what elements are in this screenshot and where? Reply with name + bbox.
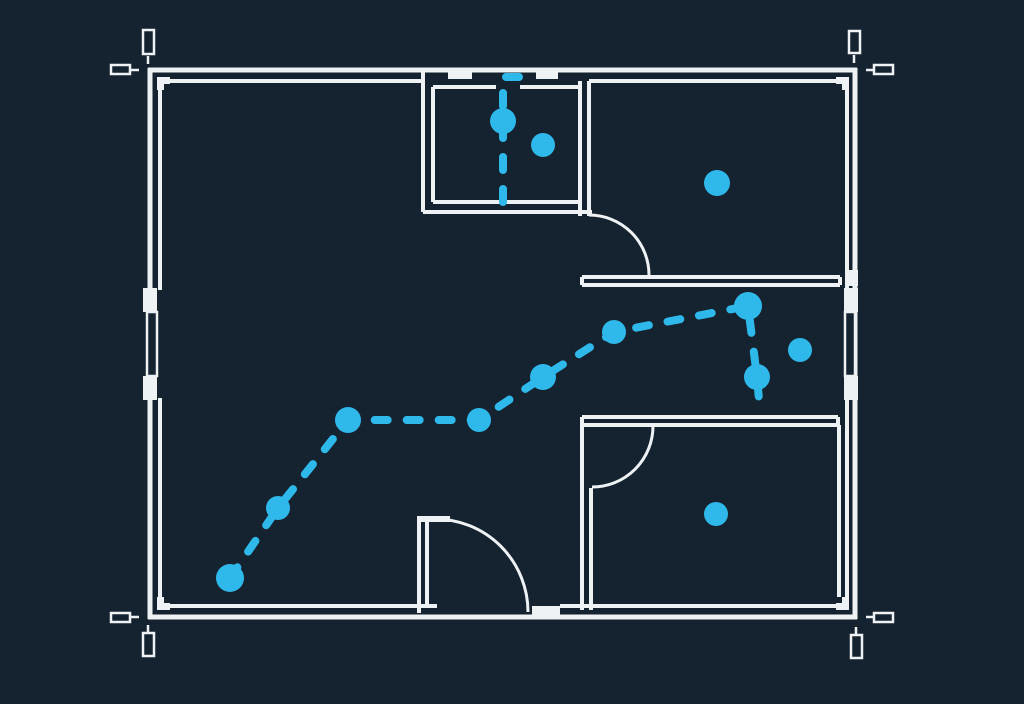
- route-node: [216, 564, 244, 592]
- wall-joint-notch: [836, 597, 842, 603]
- wall-joint-notch: [164, 84, 170, 90]
- marker-dot: [788, 338, 812, 362]
- route-node: [744, 364, 770, 390]
- wall-block: [848, 270, 858, 286]
- wall-joint-notch: [164, 597, 170, 603]
- route-node: [530, 364, 556, 390]
- wall-block: [532, 606, 560, 619]
- marker-dot: [704, 170, 730, 196]
- route-node: [467, 408, 491, 432]
- floor-plan-drawing: [0, 0, 1024, 704]
- wall-block: [536, 71, 558, 79]
- wall-block: [448, 71, 472, 79]
- wall-block: [143, 288, 157, 312]
- wall-block: [844, 376, 858, 400]
- window-pane: [147, 312, 157, 376]
- route-node: [734, 292, 762, 320]
- wall-joint-notch: [836, 84, 842, 90]
- wall-block: [844, 288, 858, 312]
- route-node: [335, 407, 361, 433]
- route-node: [266, 496, 290, 520]
- window-pane: [845, 312, 855, 376]
- marker-dot: [531, 133, 555, 157]
- route-node: [602, 320, 626, 344]
- blueprint-floor-plan: [0, 0, 1024, 704]
- route-node: [490, 108, 516, 134]
- marker-dot: [704, 502, 728, 526]
- wall-block: [143, 376, 157, 400]
